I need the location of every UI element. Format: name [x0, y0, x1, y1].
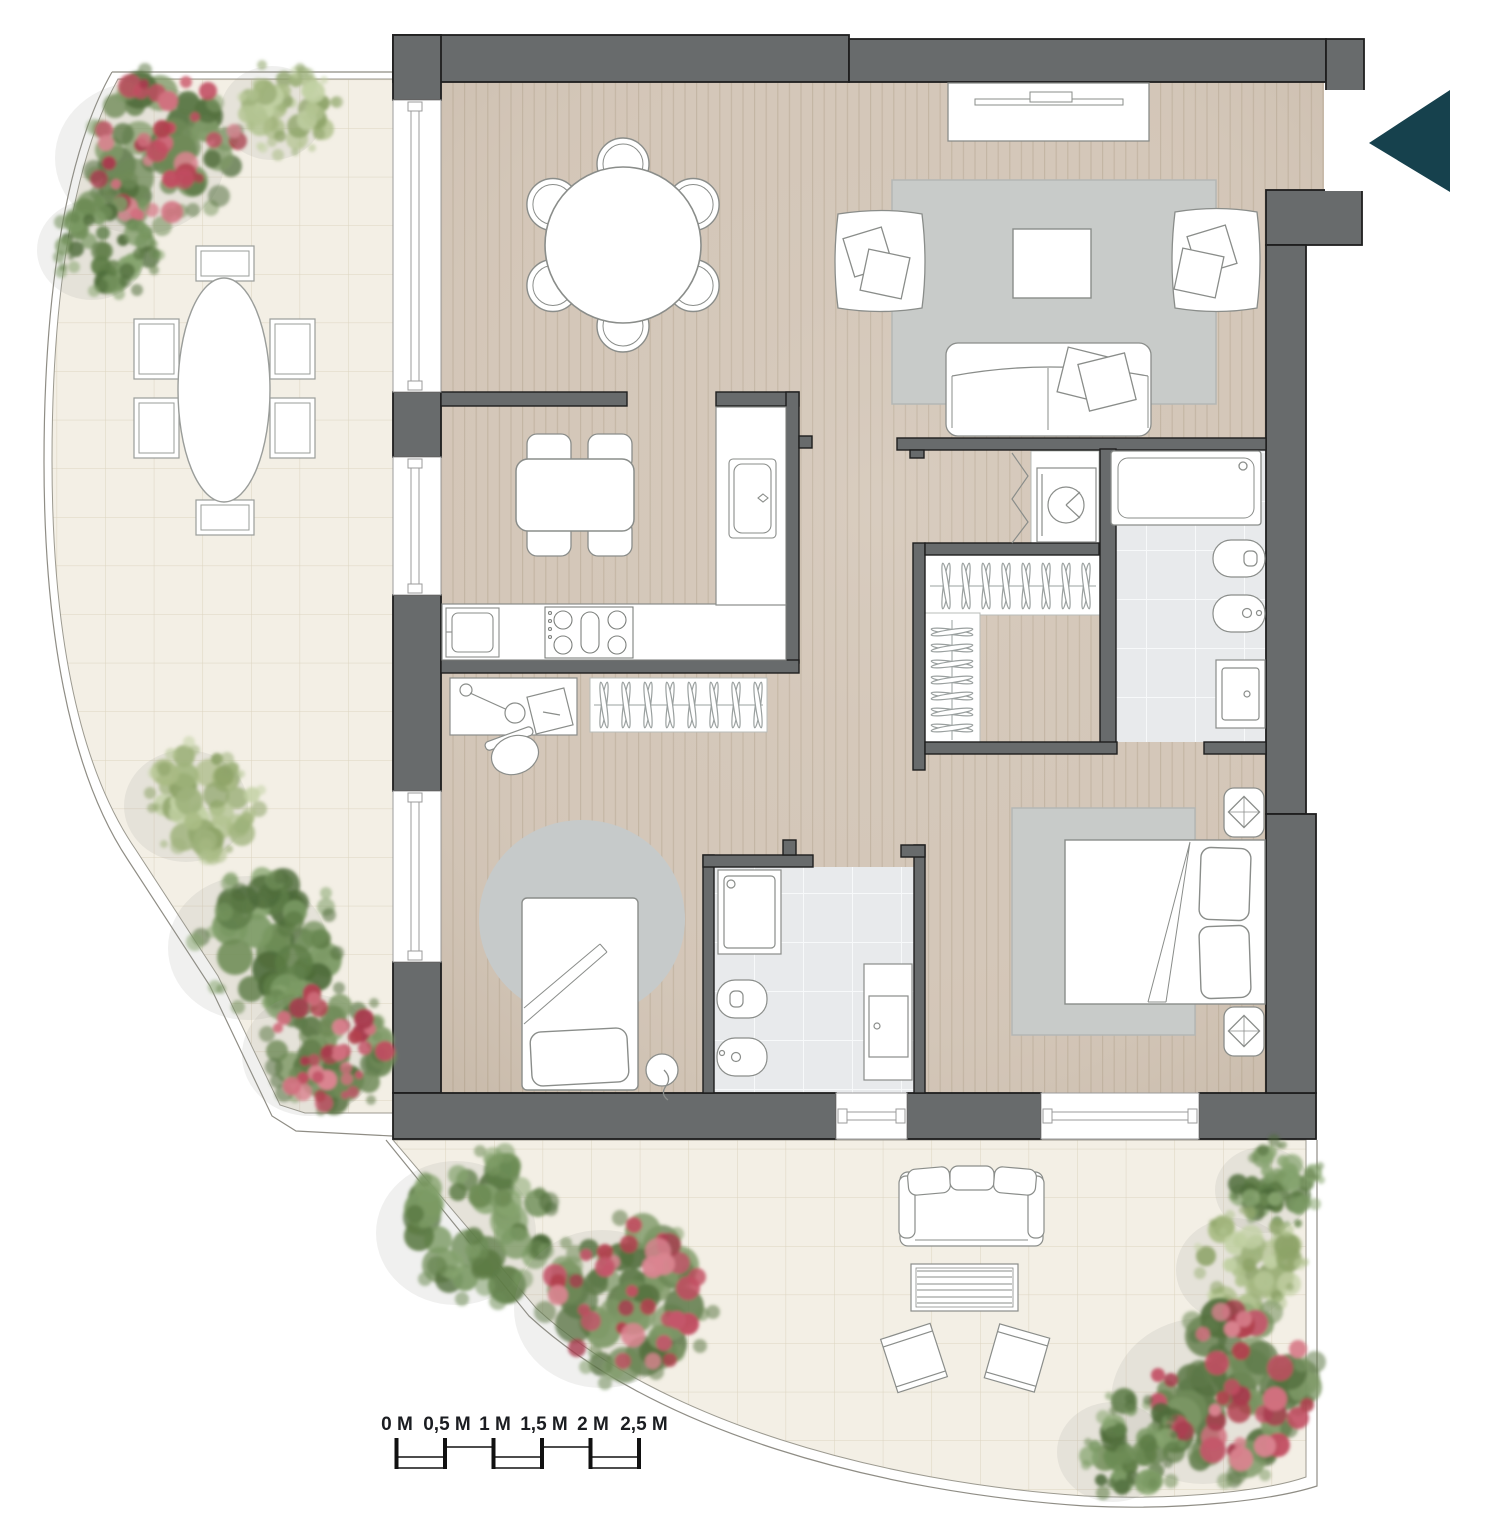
svg-text:1,5 M: 1,5 M [520, 1414, 568, 1435]
svg-text:0 M: 0 M [381, 1414, 413, 1435]
svg-text:1 M: 1 M [479, 1414, 511, 1435]
svg-text:2 M: 2 M [577, 1414, 609, 1435]
svg-text:2,5 M: 2,5 M [620, 1414, 668, 1435]
svg-text:0,5 M: 0,5 M [423, 1414, 471, 1435]
